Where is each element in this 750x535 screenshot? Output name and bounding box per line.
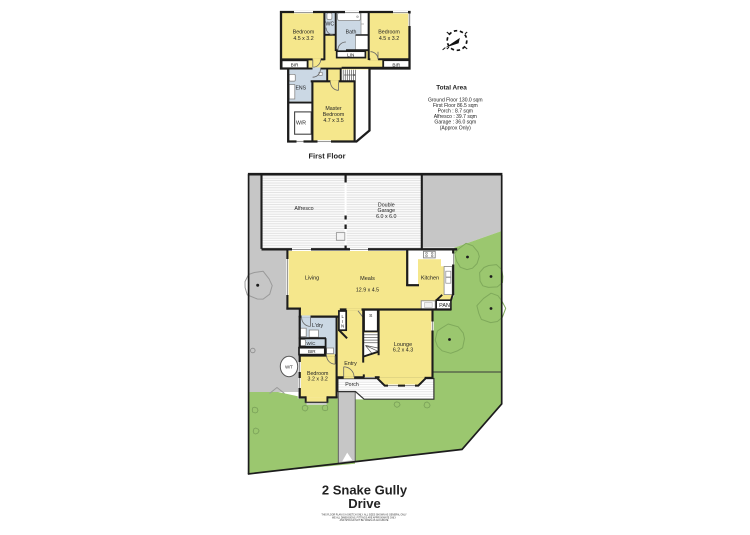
svg-text:Bedroom: Bedroom [378,30,400,36]
svg-text:4.5 x 3.2: 4.5 x 3.2 [379,36,399,42]
svg-text:W/R: W/R [296,120,306,126]
svg-text:4.7 x 3.5: 4.7 x 3.5 [323,118,343,124]
svg-text:L'dry: L'dry [312,323,323,329]
svg-text:ENS: ENS [295,86,306,92]
svg-text:4.5 x 3.2: 4.5 x 3.2 [293,36,313,42]
svg-text:AND SHOULD NOT BE TAKEN AS ACC: AND SHOULD NOT BE TAKEN AS ACCURATE [340,519,389,522]
svg-text:Bedroom: Bedroom [323,112,345,118]
svg-text:Entry: Entry [344,361,357,367]
svg-text:BIR: BIR [392,62,400,67]
svg-text:Living: Living [305,276,319,282]
svg-text:Master: Master [325,106,341,112]
svg-text:THIS FLOOR PLAN IS A SKETCH ON: THIS FLOOR PLAN IS A SKETCH ONLY. ALL SI… [321,513,407,516]
svg-text:Alfresco: Alfresco [294,206,313,212]
svg-text:Total Area: Total Area [436,85,467,92]
svg-text:N: N [341,324,344,329]
svg-text:WE ALL DIMENSIONS, FITTINGS AR: WE ALL DIMENSIONS, FITTINGS ARE APPROXIM… [332,516,396,519]
svg-text:LIN: LIN [347,53,354,58]
svg-text:Bath: Bath [346,29,357,35]
svg-text:Kitchen: Kitchen [421,276,439,282]
svg-text:6.2 x 4.3: 6.2 x 4.3 [393,348,413,354]
svg-text:Porch: Porch [345,382,359,388]
svg-text:PAN: PAN [439,303,450,309]
svg-text:Bedroom: Bedroom [293,30,315,36]
svg-text:Meals: Meals [360,276,375,282]
svg-text:(Approx Only): (Approx Only) [440,125,471,131]
svg-text:12.9 x 4.5: 12.9 x 4.5 [356,288,379,294]
svg-text:Drive: Drive [348,496,381,511]
svg-text:WC: WC [325,22,334,28]
svg-text:6.0 x 6.0: 6.0 x 6.0 [376,214,396,220]
svg-text:BIR: BIR [291,62,299,67]
svg-text:First Floor: First Floor [308,151,345,160]
svg-text:BIR: BIR [308,349,316,354]
svg-text:3.2 x 3.2: 3.2 x 3.2 [308,377,328,383]
svg-text:W/T: W/T [285,364,293,369]
svg-text:W/C: W/C [307,341,317,346]
